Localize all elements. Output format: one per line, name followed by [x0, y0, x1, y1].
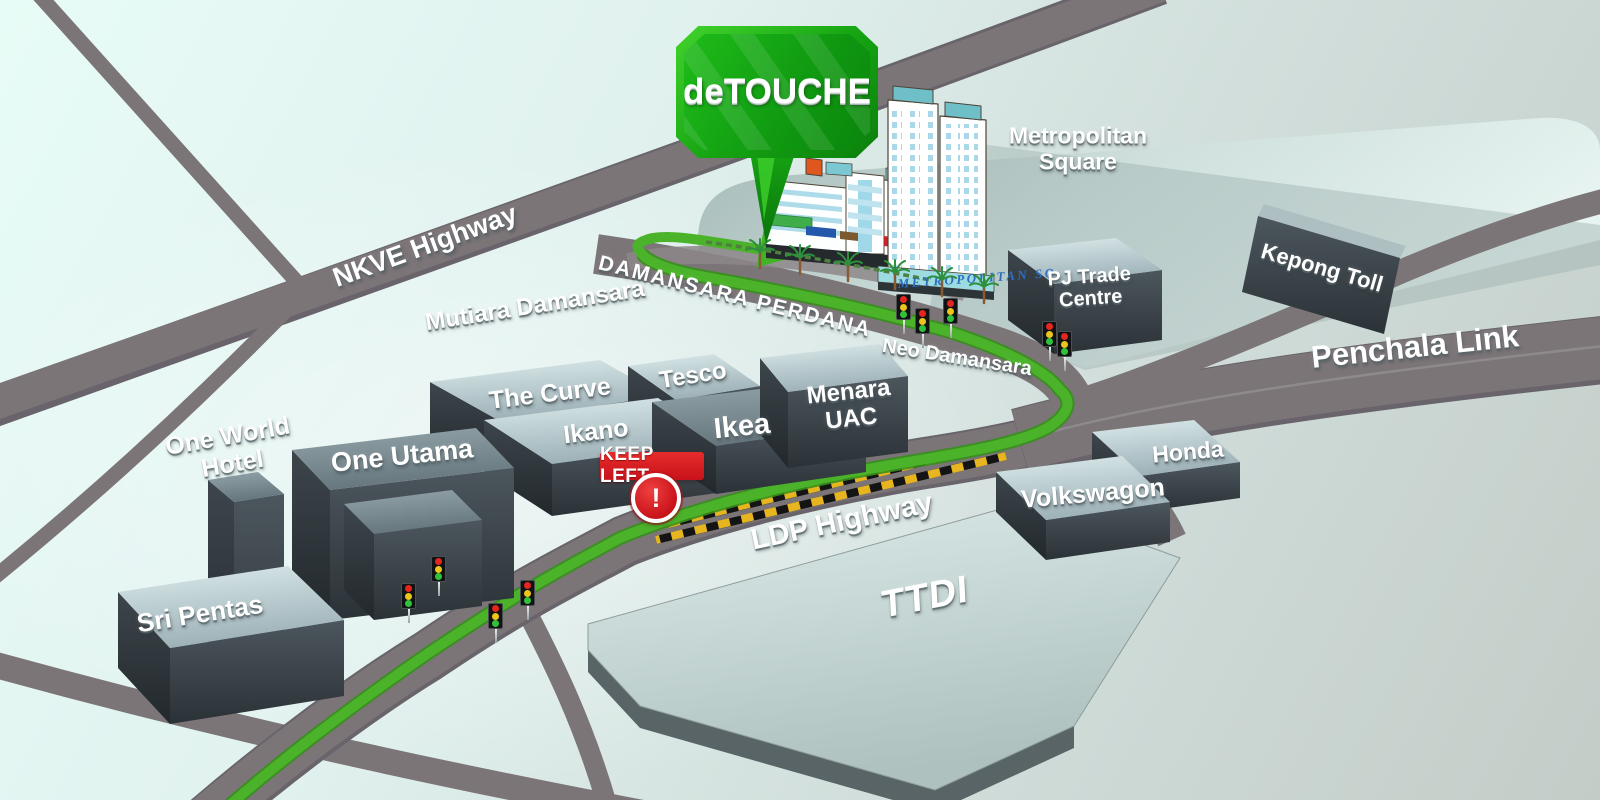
- location-map: METROPOLITAN SQ deTOUCHE KEEP LEFT ! NKV…: [0, 0, 1600, 800]
- tower-windows: [944, 124, 982, 274]
- building-sri-pentas: [118, 566, 344, 724]
- tower-pilaster: [970, 123, 974, 277]
- traffic-light-icon: [431, 556, 446, 596]
- exclamation-icon: !: [631, 473, 681, 523]
- place-label-pj-trade-centre: PJ Trade Centre: [1039, 262, 1142, 314]
- roof-box-orange: [806, 158, 822, 176]
- traffic-light-icon: [520, 580, 535, 620]
- roof-panel-teal: [826, 162, 852, 176]
- callout-detouche: deTOUCHE: [676, 26, 878, 158]
- traffic-light-icon: [488, 603, 503, 643]
- traffic-light-icon: [1042, 321, 1057, 361]
- tower-pilaster: [920, 107, 924, 273]
- traffic-light-icon: [943, 298, 958, 338]
- place-label-ikea: Ikea: [712, 408, 772, 447]
- tower-pilaster: [954, 122, 958, 276]
- traffic-light-icon: [401, 583, 416, 623]
- traffic-light-icon: [896, 294, 911, 334]
- tower-windows: [892, 108, 934, 270]
- face: [374, 520, 482, 620]
- place-label-metropolitan-square: Metropolitan Square: [998, 123, 1158, 175]
- traffic-light-icon: [1057, 331, 1072, 371]
- tower-pilaster: [902, 106, 906, 272]
- callout-text: deTOUCHE: [683, 72, 871, 112]
- place-label-menara-uac: Menara UAC: [795, 374, 905, 438]
- callout-inner: deTOUCHE: [684, 34, 870, 150]
